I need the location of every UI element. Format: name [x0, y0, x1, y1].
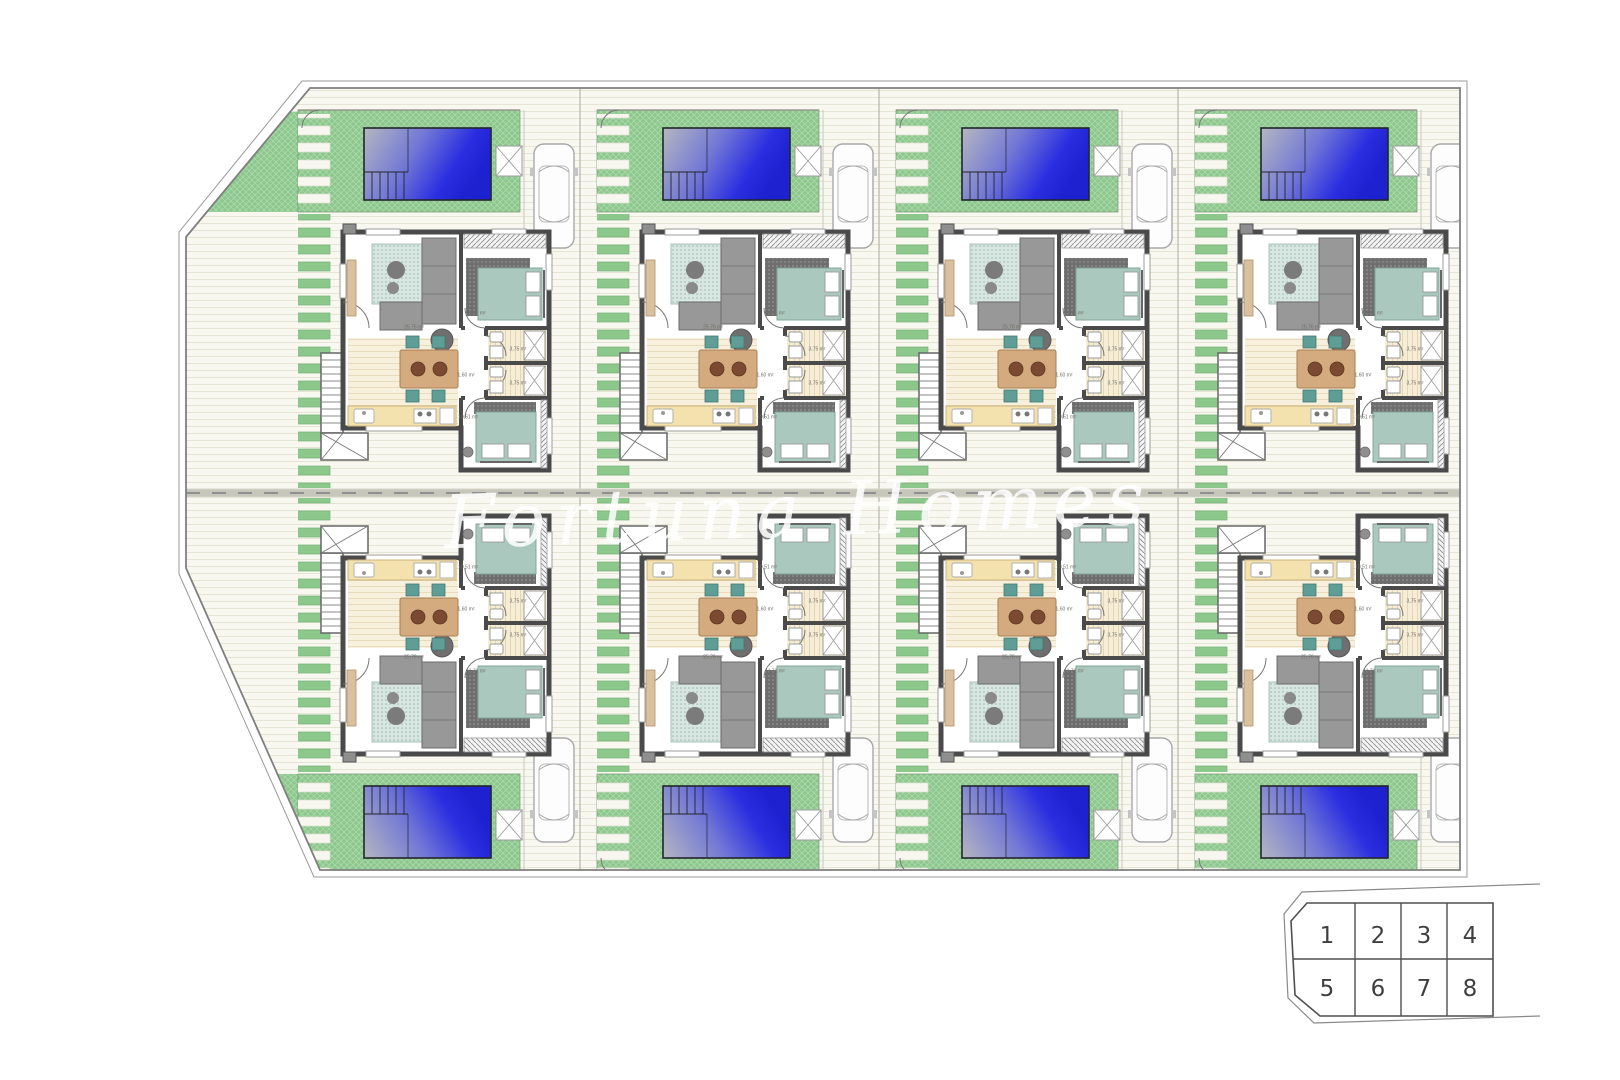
area-label-bath-a: 3,75 m² — [1407, 634, 1424, 639]
area-label-hall: 1,60 m² — [458, 608, 475, 613]
area-label-living: 25,76 m² — [703, 656, 723, 661]
area-label-bedroom-front: 11,71 m² — [765, 312, 784, 317]
area-label-bedroom-front: 11,71 m² — [1363, 670, 1382, 675]
area-label-bedroom-front: 11,71 m² — [466, 312, 485, 317]
key-plan-number-3: 3 — [1417, 923, 1432, 949]
area-label-bedroom-rear: 10,51 m² — [1056, 416, 1076, 421]
key-plan-number-6: 6 — [1371, 976, 1386, 1002]
site-plan-canvas: 1 2 3 4 5 6 7 8 25,76 m²11,71 m²1,60 m²3… — [0, 0, 1620, 1080]
area-label-bedroom-rear: 10,51 m² — [1355, 566, 1375, 571]
area-label-bath-a: 3,75 m² — [1407, 348, 1424, 353]
area-label-living: 25,76 m² — [1301, 656, 1321, 661]
area-label-bedroom-rear: 10,51 m² — [458, 416, 478, 421]
area-label-bedroom-front: 11,71 m² — [1363, 312, 1382, 317]
area-label-bath-a: 3,75 m² — [809, 634, 826, 639]
area-label-bath-b: 3,75 m² — [1108, 600, 1125, 605]
area-label-bedroom-front: 11,71 m² — [765, 670, 784, 675]
area-label-hall: 1,60 m² — [1056, 608, 1073, 613]
area-label-bath-a: 3,75 m² — [510, 348, 527, 353]
area-label-hall: 1,60 m² — [757, 608, 774, 613]
key-plan-number-1: 1 — [1320, 923, 1335, 949]
area-label-hall: 1,60 m² — [1056, 374, 1073, 379]
area-label-bath-b: 3,75 m² — [1407, 382, 1424, 387]
area-label-bath-a: 3,75 m² — [809, 348, 826, 353]
area-label-living: 25,76 m² — [703, 326, 723, 331]
area-label-living: 25,76 m² — [404, 656, 424, 661]
area-label-bath-b: 3,75 m² — [809, 382, 826, 387]
area-label-living: 25,76 m² — [404, 326, 424, 331]
area-label-living: 25,76 m² — [1002, 326, 1022, 331]
area-label-hall: 1,60 m² — [1355, 374, 1372, 379]
area-label-bedroom-front: 11,71 m² — [466, 670, 485, 675]
key-plan-number-7: 7 — [1417, 976, 1432, 1002]
key-plan-number-2: 2 — [1371, 923, 1386, 949]
area-label-bedroom-rear: 10,51 m² — [757, 416, 777, 421]
area-label-bath-b: 3,75 m² — [510, 382, 527, 387]
area-label-bath-a: 3,75 m² — [1108, 348, 1125, 353]
area-label-bedroom-front: 11,71 m² — [1064, 670, 1083, 675]
site-plan-drawing: 1 2 3 4 5 6 7 8 — [0, 0, 1620, 1080]
area-label-bath-b: 3,75 m² — [1108, 382, 1125, 387]
key-plan-number-8: 8 — [1463, 976, 1478, 1002]
area-label-hall: 1,60 m² — [757, 374, 774, 379]
area-label-bedroom-front: 11,71 m² — [1064, 312, 1083, 317]
area-label-hall: 1,60 m² — [458, 374, 475, 379]
area-label-bath-b: 3,75 m² — [809, 600, 826, 605]
area-label-hall: 1,60 m² — [1355, 608, 1372, 613]
area-label-bedroom-rear: 10,51 m² — [458, 566, 478, 571]
area-label-bath-b: 3,75 m² — [1407, 600, 1424, 605]
area-label-bath-b: 3,75 m² — [510, 600, 527, 605]
area-label-bath-a: 3,75 m² — [510, 634, 527, 639]
key-plan-number-5: 5 — [1320, 976, 1335, 1002]
area-label-bath-a: 3,75 m² — [1108, 634, 1125, 639]
area-label-living: 25,76 m² — [1002, 656, 1022, 661]
key-plan: 1 2 3 4 5 6 7 8 — [1284, 884, 1540, 1023]
key-plan-number-4: 4 — [1463, 923, 1478, 949]
area-label-bedroom-rear: 10,51 m² — [1355, 416, 1375, 421]
area-label-bedroom-rear: 10,51 m² — [1056, 566, 1076, 571]
middle-divider — [186, 489, 1460, 497]
area-label-bedroom-rear: 10,51 m² — [757, 566, 777, 571]
area-label-living: 25,76 m² — [1301, 326, 1321, 331]
